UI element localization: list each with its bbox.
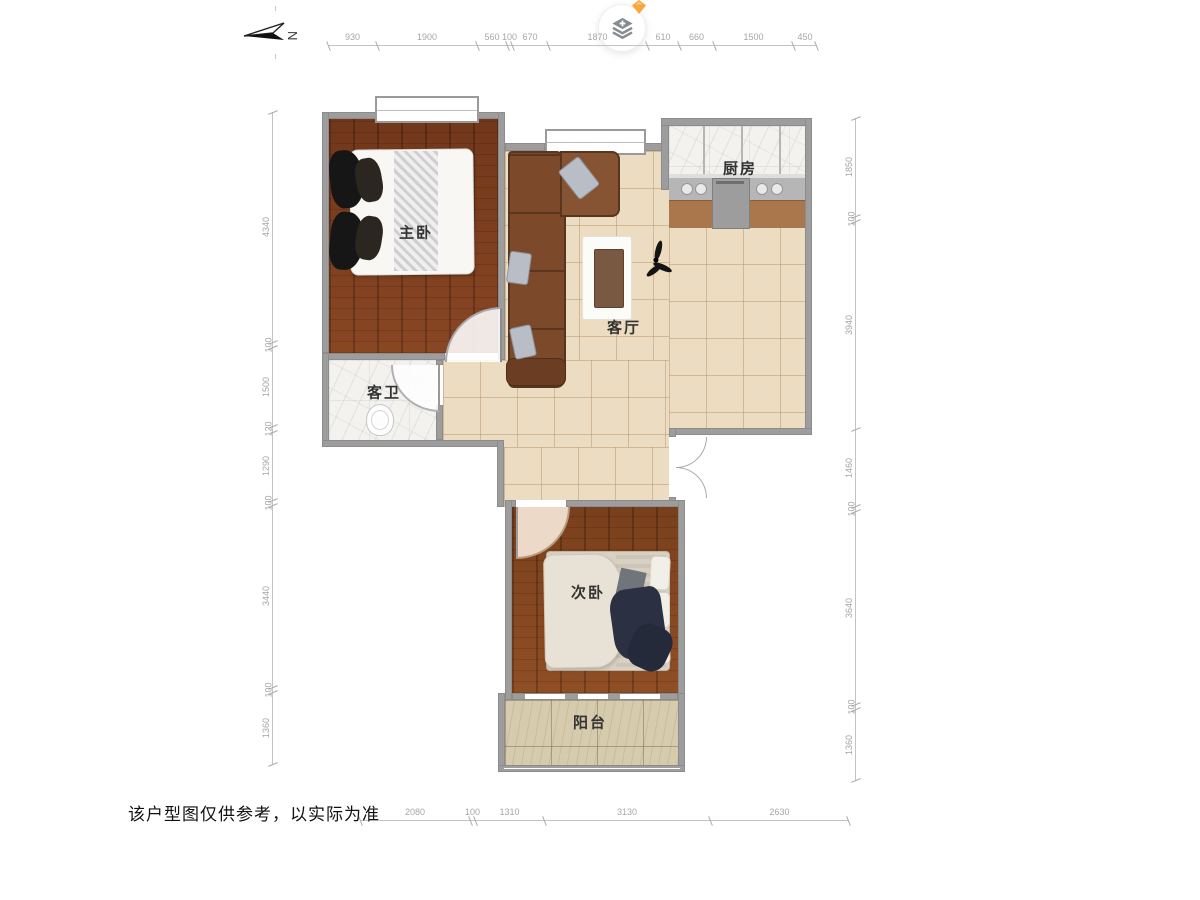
corridor-floor (504, 447, 669, 507)
wall (505, 500, 512, 700)
dim-label: 1310 (499, 807, 519, 817)
wall (322, 353, 329, 447)
kitchen-sink (681, 183, 693, 195)
wall (322, 112, 329, 353)
dim-label: 1870 (587, 32, 607, 42)
dim-label: 930 (345, 32, 360, 42)
dimension-line-right: 1850 100 3940 1460 100 3640 100 1360 (855, 118, 864, 781)
dim-label: 1360 (844, 735, 854, 755)
layers-icon (609, 15, 636, 42)
dim-label: 3940 (844, 315, 854, 335)
compass-north-icon: N (236, 4, 306, 62)
kitchen-burner (771, 183, 783, 195)
dim-label: 2080 (405, 807, 425, 817)
dim-label: 3640 (844, 597, 854, 617)
gem-badge-icon (632, 0, 646, 14)
kitchen-window-mullion (779, 126, 781, 178)
room-label-second-bedroom: 次卧 (571, 582, 605, 603)
kitchen-cabinet (669, 200, 712, 228)
master-bed-runner (394, 151, 438, 271)
kitchen-burner (756, 183, 768, 195)
dim-label: 610 (655, 32, 670, 42)
master-bedroom-window (375, 96, 479, 123)
dimension-line-top: 930 1900 560 100 670 1870 610 660 1500 4… (328, 45, 817, 54)
entry-door-swing (676, 467, 707, 498)
sliding-window-pane (620, 694, 660, 699)
dim-label: 1900 (417, 32, 437, 42)
kitchen-cabinet (748, 200, 805, 228)
dim-label: 2630 (769, 807, 789, 817)
wall (505, 143, 545, 151)
sliding-window-pane (578, 694, 608, 699)
wall (678, 500, 685, 700)
second-bedroom-door-gap (516, 500, 566, 507)
room-label-guest-bathroom: 客卫 (367, 382, 401, 403)
balcony-railing-line (504, 768, 680, 769)
dim-label: 1460 (844, 457, 854, 477)
dim-label: 1850 (844, 157, 854, 177)
wall (566, 500, 685, 507)
wall (669, 428, 676, 437)
dim-label: 4340 (261, 217, 271, 237)
sofa-armrest (506, 358, 566, 386)
dimension-line-bottom: 2080 100 1310 3130 2630 (360, 820, 849, 829)
room-label-balcony: 阳台 (573, 712, 607, 733)
second-bed-pillow (649, 555, 671, 590)
toilet-seat (371, 410, 389, 430)
dim-label: 1290 (261, 456, 271, 476)
coffee-table (594, 249, 624, 308)
entry-door-gap (669, 437, 676, 497)
wall (498, 693, 505, 772)
dim-label: 560 (484, 32, 499, 42)
disclaimer-text: 该户型图仅供参考，以实际为准 (128, 800, 380, 825)
balcony-floor (505, 700, 678, 765)
entry-door-swing (676, 437, 707, 468)
sofa-pillow (506, 251, 532, 286)
wall (322, 353, 445, 360)
dim-label: 1500 (261, 376, 271, 396)
dim-label: 1500 (743, 32, 763, 42)
dim-label: 3130 (617, 807, 637, 817)
wall (805, 118, 812, 435)
dim-label: 670 (522, 32, 537, 42)
dim-label: 450 (797, 32, 812, 42)
room-label-kitchen: 厨房 (723, 158, 757, 179)
kitchen-window-mullion (703, 126, 705, 178)
kitchen-stove (712, 178, 750, 229)
kitchen-sink (695, 183, 707, 195)
dim-label: 1360 (261, 718, 271, 738)
room-label-living-room: 客厅 (607, 317, 641, 338)
dining-area-floor (669, 227, 805, 428)
wall (497, 440, 504, 507)
wall (661, 118, 812, 126)
kitchen-stove-detail (716, 181, 744, 184)
room-label-master-bedroom: 主卧 (399, 222, 433, 243)
wall (661, 118, 669, 190)
compass-north-label: N (285, 31, 300, 40)
wall (322, 440, 504, 447)
sliding-window-pane (525, 694, 565, 699)
dimension-line-left: 4340 100 1500 120 1290 100 3440 100 1360 (272, 112, 281, 765)
wall (678, 693, 685, 772)
ceiling-fan-icon (636, 240, 676, 280)
dim-label: 660 (689, 32, 704, 42)
dim-label: 3440 (261, 586, 271, 606)
wall (669, 428, 812, 435)
floorplan-page: N (0, 0, 1200, 900)
